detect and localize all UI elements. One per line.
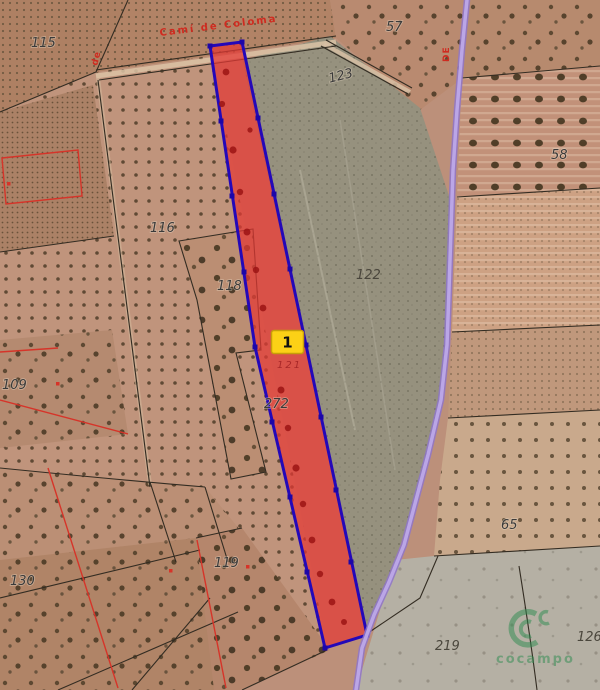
field-65-trees	[434, 410, 600, 556]
watermark-text: cocampo	[496, 652, 575, 667]
parcel-label-65: 65	[501, 518, 518, 533]
parcel-label-272: 272	[264, 397, 289, 412]
parcel-label-115: 115	[31, 36, 56, 51]
side-label-right: DE	[442, 46, 452, 62]
red-point	[169, 569, 173, 573]
highlighted-parcel-number: 121	[277, 360, 302, 371]
field-58-trees	[457, 66, 600, 197]
field-130-trees	[0, 538, 230, 690]
field-right-striped-dots	[452, 188, 600, 332]
parcel-label-116: 116	[150, 221, 175, 236]
map-canvas[interactable]: 121 115 57 123 58 116 118 122 109 272 11…	[0, 0, 600, 690]
red-point	[7, 182, 11, 186]
cadastral-map: 121 115 57 123 58 116 118 122 109 272 11…	[0, 0, 600, 690]
parcel-label-118: 118	[217, 279, 242, 294]
marker-number: 1	[282, 334, 292, 352]
parcel-label-119: 119	[214, 556, 239, 571]
parcel-label-57: 57	[386, 20, 403, 35]
red-point	[246, 565, 250, 569]
parcel-label-219: 219	[435, 639, 460, 654]
parcel-label-126: 126	[577, 630, 600, 645]
parcel-label-109: 109	[2, 378, 27, 393]
red-point	[56, 382, 60, 386]
parcel-marker[interactable]: 1	[272, 331, 304, 354]
field-right-mid-rows	[448, 325, 600, 418]
field-top-right-trees	[462, 0, 600, 78]
parcel-label-58: 58	[551, 148, 568, 163]
parcel-label-122: 122	[356, 268, 381, 283]
parcel-label-130: 130	[10, 574, 35, 589]
